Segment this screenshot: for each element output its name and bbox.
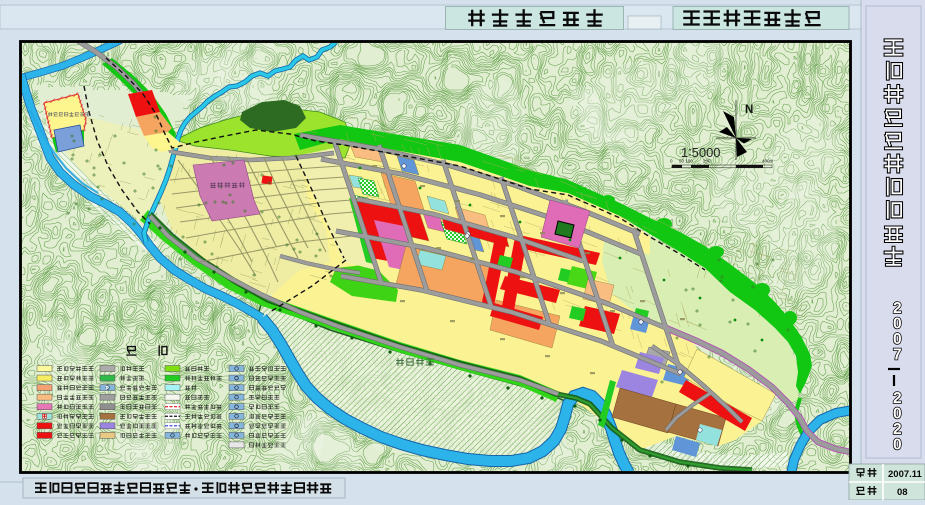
svg-text:0: 0	[893, 437, 902, 454]
svg-text:0: 0	[893, 406, 902, 423]
svg-text:08: 08	[897, 487, 908, 498]
svg-text:400m: 400m	[762, 159, 774, 164]
svg-text:200: 200	[703, 159, 711, 164]
svg-text:2007.11: 2007.11	[888, 469, 923, 480]
svg-text:7: 7	[893, 347, 902, 364]
svg-text:0: 0	[893, 331, 902, 348]
svg-text:2: 2	[893, 300, 902, 317]
svg-text:0: 0	[893, 316, 902, 333]
svg-text:2: 2	[893, 390, 902, 407]
svg-text:N: N	[745, 104, 753, 116]
svg-text:2: 2	[893, 421, 902, 438]
svg-text:50 100: 50 100	[679, 159, 693, 164]
